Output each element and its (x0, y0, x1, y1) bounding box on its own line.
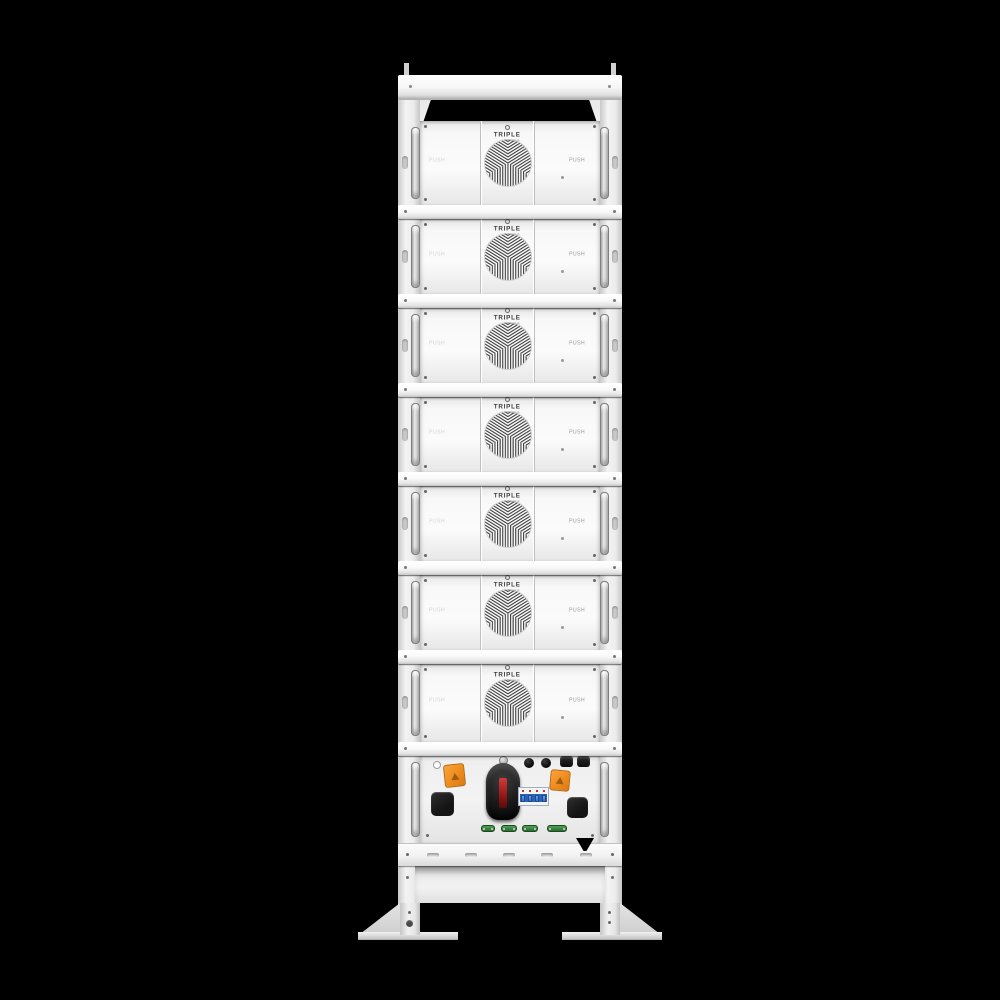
vent-slot (503, 853, 515, 857)
brand-logo: TRIPLE POWER (481, 308, 534, 327)
screw-icon (593, 668, 596, 671)
latch-dot-icon (561, 716, 564, 719)
shelf-rail (398, 205, 622, 219)
cap-plug-2-icon[interactable] (577, 756, 590, 767)
brand-logo: TRIPLE POWER (481, 575, 534, 594)
indicator-hole-icon (433, 761, 441, 769)
module-handle-right[interactable] (600, 225, 609, 288)
brand-subname: POWER (504, 322, 520, 325)
control-handle-left[interactable] (411, 762, 420, 837)
brand-logo: TRIPLE POWER (481, 486, 534, 505)
post-slot (612, 250, 618, 263)
screw-icon (424, 465, 427, 468)
module-handle-right[interactable] (600, 403, 609, 466)
latch-label-left[interactable]: PUSH (429, 251, 445, 256)
screw-icon (611, 853, 614, 856)
latch-label-right[interactable]: PUSH (569, 698, 585, 703)
control-handle-right[interactable] (600, 762, 609, 837)
battery-module: TRIPLE POWER PUSH PUSH (420, 664, 600, 742)
orange-connector-left-icon[interactable] (443, 763, 466, 788)
post-slot (402, 517, 408, 530)
latch-label-right[interactable]: PUSH (569, 607, 585, 612)
battery-tower-product-image: TRIPLE POWER PUSH PUSH (0, 0, 1000, 1000)
module-center-panel: TRIPLE POWER (480, 486, 535, 561)
module-center-panel: TRIPLE POWER (480, 664, 535, 742)
brand-name: TRIPLE (494, 403, 521, 409)
battery-module: TRIPLE POWER PUSH PUSH (420, 308, 600, 383)
fan-grille-icon (484, 589, 532, 637)
cap-plug-1-icon[interactable] (560, 756, 573, 767)
post-slot (612, 517, 618, 530)
shelf-rail (398, 472, 622, 486)
module-handle-right[interactable] (600, 492, 609, 555)
rack-leg-left (400, 903, 420, 935)
latch-dot-icon (561, 359, 564, 362)
battery-module: TRIPLE POWER PUSH PUSH (420, 486, 600, 561)
latch-label-left[interactable]: PUSH (429, 607, 445, 612)
latch-label-right[interactable]: PUSH (569, 340, 585, 345)
rack-leg-right (600, 903, 620, 935)
latch-label-left[interactable]: PUSH (429, 158, 445, 163)
screw-icon (593, 198, 596, 201)
brand-logo: TRIPLE POWER (481, 125, 534, 144)
module-center-panel: TRIPLE POWER (480, 121, 535, 205)
grommet-icon (406, 920, 413, 927)
fan-grille-icon (484, 233, 532, 281)
foot-gusset-left (360, 903, 400, 934)
green-comm-port-3-icon[interactable] (522, 825, 538, 832)
orange-connector-right-icon[interactable] (549, 769, 571, 792)
fan-grille-icon (484, 500, 532, 548)
battery-module: TRIPLE POWER PUSH PUSH (420, 219, 600, 294)
brand-logo-ring-icon (505, 486, 510, 491)
module-handle-left[interactable] (411, 314, 420, 377)
latch-dot-icon (561, 176, 564, 179)
post-slot (612, 156, 618, 169)
brand-logo-ring-icon (505, 397, 510, 402)
post-slot (612, 339, 618, 352)
screw-icon (593, 490, 596, 493)
post-slot (402, 428, 408, 441)
module-center-panel: TRIPLE POWER (480, 397, 535, 472)
green-comm-port-1-icon[interactable] (481, 825, 495, 832)
screw-icon (424, 223, 427, 226)
brand-name: TRIPLE (494, 132, 521, 138)
screw-icon (424, 735, 427, 738)
brand-name: TRIPLE (494, 314, 521, 320)
rack-open-gap (420, 100, 600, 121)
post-slot (402, 696, 408, 709)
brand-subname: POWER (504, 680, 520, 683)
rack-lower-beam (415, 866, 605, 903)
module-handle-left[interactable] (411, 225, 420, 288)
battery-rack: TRIPLE POWER PUSH PUSH (398, 75, 622, 940)
screw-icon (424, 287, 427, 290)
rubber-pad-left-icon (431, 792, 454, 816)
fan-grille-icon (484, 322, 532, 370)
latch-label-left[interactable]: PUSH (429, 698, 445, 703)
brand-subname: POWER (504, 140, 520, 143)
module-center-panel: TRIPLE POWER (480, 219, 535, 294)
post-slot (402, 606, 408, 619)
screw-icon (424, 312, 427, 315)
control-unit (420, 756, 600, 843)
screw-icon (424, 490, 427, 493)
screw-icon (424, 579, 427, 582)
screw-icon (608, 911, 611, 914)
screw-icon (408, 911, 411, 914)
brand-name: TRIPLE (494, 492, 521, 498)
brand-logo-ring-icon (505, 125, 510, 130)
module-handle-right[interactable] (600, 127, 609, 199)
screw-icon (424, 401, 427, 404)
brand-name: TRIPLE (494, 581, 521, 587)
battery-module: TRIPLE POWER PUSH PUSH (420, 121, 600, 205)
screw-icon (424, 643, 427, 646)
breaker-indicator-row (519, 789, 548, 793)
switch-red-stripe (499, 778, 507, 808)
module-handle-right[interactable] (600, 670, 609, 736)
screw-icon (593, 223, 596, 226)
vent-slot (580, 853, 592, 857)
screw-icon (593, 312, 596, 315)
latch-dot-icon (561, 270, 564, 273)
brand-subname: POWER (504, 589, 520, 592)
post-slot (402, 156, 408, 169)
module-handle-left[interactable] (411, 127, 420, 199)
latch-label-right[interactable]: PUSH (569, 251, 585, 256)
latch-label-right[interactable]: PUSH (569, 158, 585, 163)
post-slot (612, 606, 618, 619)
brand-logo-ring-icon (505, 575, 510, 580)
shelf-rail (398, 561, 622, 575)
vent-slot (541, 853, 553, 857)
green-comm-port-2-icon[interactable] (501, 825, 517, 832)
shelf-rail (398, 650, 622, 664)
fan-grille-icon (484, 139, 532, 187)
brand-logo: TRIPLE POWER (481, 665, 534, 684)
battery-module: TRIPLE POWER PUSH PUSH (420, 575, 600, 650)
brand-subname: POWER (504, 233, 520, 236)
green-comm-port-4-icon[interactable] (547, 825, 567, 832)
brand-logo-ring-icon (505, 308, 510, 313)
rack-gap-opening (420, 100, 600, 121)
screw-icon (424, 198, 427, 201)
screw-icon (593, 401, 596, 404)
round-plug-1-icon[interactable] (524, 758, 534, 768)
module-handle-left[interactable] (411, 492, 420, 555)
screw-icon (424, 554, 427, 557)
brand-subname: POWER (504, 411, 520, 414)
screw-icon (426, 834, 429, 837)
shelf-rail (398, 294, 622, 308)
latch-dot-icon (561, 626, 564, 629)
latch-label-right[interactable]: PUSH (569, 518, 585, 523)
module-handle-left[interactable] (411, 403, 420, 466)
screw-icon (593, 465, 596, 468)
rubber-pad-right-icon (567, 797, 588, 818)
screw-icon (424, 668, 427, 671)
brand-logo: TRIPLE POWER (481, 397, 534, 416)
module-handle-left[interactable] (411, 581, 420, 644)
post-slot (402, 250, 408, 263)
brand-logo-ring-icon (505, 219, 510, 224)
screw-icon (424, 376, 427, 379)
brand-name: TRIPLE (494, 672, 521, 678)
battery-module: TRIPLE POWER PUSH PUSH (420, 397, 600, 472)
screw-icon (593, 554, 596, 557)
shelf-rail (398, 742, 622, 756)
latch-label-left[interactable]: PUSH (429, 518, 445, 523)
module-handle-right[interactable] (600, 581, 609, 644)
brand-name: TRIPLE (494, 225, 521, 231)
post-slot (612, 696, 618, 709)
foot-gusset-right (620, 903, 660, 934)
latch-dot-icon (561, 448, 564, 451)
latch-label-right[interactable]: PUSH (569, 429, 585, 434)
screw-icon (593, 643, 596, 646)
brand-logo: TRIPLE POWER (481, 219, 534, 238)
module-handle-left[interactable] (411, 670, 420, 736)
dc-breaker[interactable] (518, 787, 549, 806)
screw-icon (593, 125, 596, 128)
rack-top-beam (398, 75, 622, 100)
round-plug-2-icon[interactable] (541, 758, 551, 768)
post-slot (402, 339, 408, 352)
latch-label-left[interactable]: PUSH (429, 340, 445, 345)
vent-slot (465, 853, 477, 857)
module-handle-right[interactable] (600, 314, 609, 377)
module-center-panel: TRIPLE POWER (480, 575, 535, 650)
brand-logo-ring-icon (505, 665, 510, 670)
screw-icon (406, 853, 409, 856)
latch-dot-icon (561, 537, 564, 540)
screw-icon (424, 125, 427, 128)
rotary-disconnect-switch[interactable] (486, 763, 520, 820)
fan-grille-icon (484, 411, 532, 459)
vent-slot (427, 853, 439, 857)
screw-icon (593, 287, 596, 290)
shelf-rail (398, 383, 622, 397)
screw-icon (593, 579, 596, 582)
post-slot (612, 428, 618, 441)
screw-icon (591, 834, 594, 837)
module-center-panel: TRIPLE POWER (480, 308, 535, 383)
fan-grille-icon (484, 679, 532, 727)
screw-icon (593, 735, 596, 738)
breaker-toggle-row[interactable] (520, 794, 547, 802)
latch-label-left[interactable]: PUSH (429, 429, 445, 434)
brand-subname: POWER (504, 500, 520, 503)
screw-icon (593, 376, 596, 379)
screw-icon (608, 921, 611, 924)
